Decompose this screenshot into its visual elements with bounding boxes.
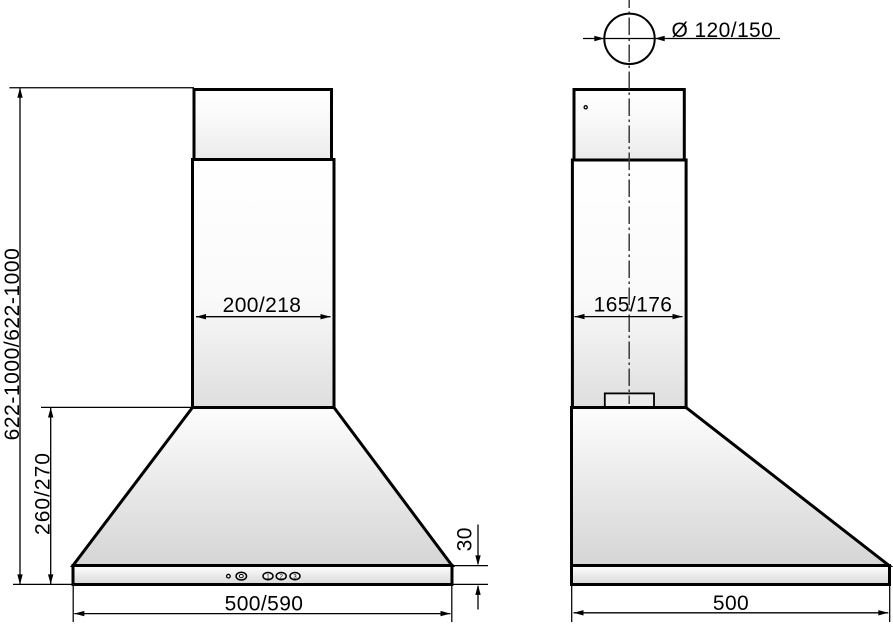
svg-text:165/176: 165/176 bbox=[594, 294, 673, 317]
svg-text:2: 2 bbox=[279, 573, 283, 580]
svg-text:500/590: 500/590 bbox=[225, 592, 304, 615]
svg-text:622-1000/622-1000: 622-1000/622-1000 bbox=[1, 248, 24, 441]
svg-text:1: 1 bbox=[266, 573, 270, 580]
svg-text:500: 500 bbox=[713, 592, 749, 615]
svg-text:Ø 120/150: Ø 120/150 bbox=[672, 19, 774, 42]
svg-text:200/218: 200/218 bbox=[223, 294, 302, 317]
svg-text:260/270: 260/270 bbox=[32, 452, 55, 535]
svg-text:30: 30 bbox=[454, 527, 477, 551]
svg-text:3: 3 bbox=[293, 573, 297, 580]
